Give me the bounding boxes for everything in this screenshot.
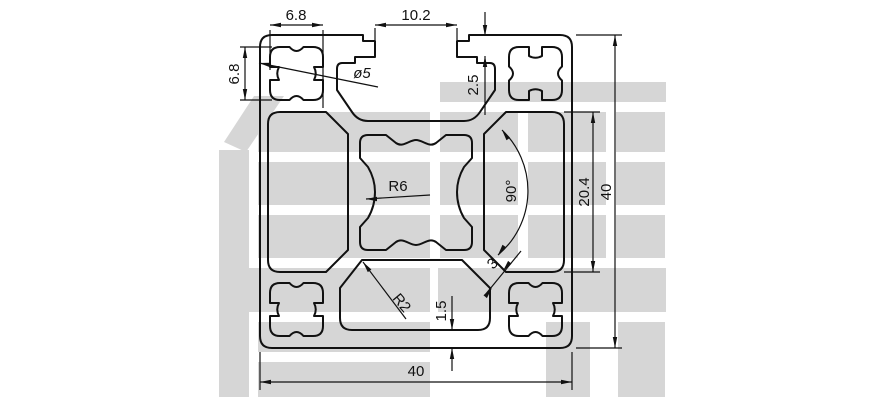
dim-overall-width: 40: [408, 363, 425, 380]
dim-bottom-wall: 1.5: [433, 301, 450, 322]
corner-channel-top-left: [270, 47, 323, 100]
dim-lip-depth: 2.5: [465, 75, 482, 96]
dim-screw-hole: ø5: [353, 65, 371, 82]
watermark: [219, 82, 666, 397]
dim-cavity-height: 20.4: [576, 177, 593, 206]
dim-corner-width: 6.8: [286, 7, 307, 24]
dim-overall-height: 40: [598, 184, 615, 201]
technical-drawing-canvas: 6.8 10.2 6.8 ø5 2.5 R6 90° 20.4 40 3 R2 …: [0, 0, 880, 420]
dim-slot-opening: 10.2: [401, 7, 430, 24]
dim-groove-angle: 90°: [503, 180, 520, 203]
dim-corner-height: 6.8: [226, 64, 243, 85]
dim-core-radius: R6: [388, 178, 407, 195]
extrusion-profile-drawing: 6.8 10.2 6.8 ø5 2.5 R6 90° 20.4 40 3 R2 …: [0, 0, 880, 420]
